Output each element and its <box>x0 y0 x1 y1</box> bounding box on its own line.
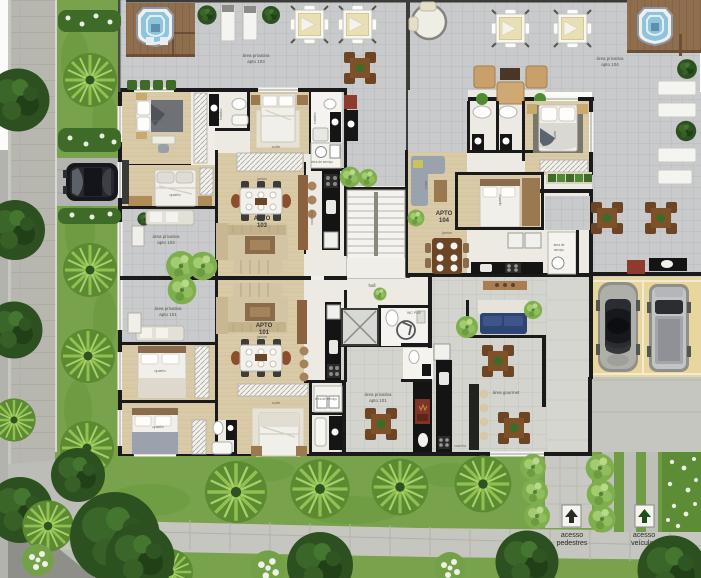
svg-text:banho: banho <box>312 112 317 124</box>
svg-text:acesso: acesso <box>633 532 655 539</box>
svg-text:pedestres: pedestres <box>557 540 588 547</box>
svg-text:quarto: quarto <box>152 424 164 429</box>
svg-text:cozinha: cozinha <box>309 210 314 225</box>
svg-text:quarto: quarto <box>152 118 164 123</box>
svg-text:apto 103: apto 103 <box>247 59 265 64</box>
svg-text:cozinha: cozinha <box>454 444 466 448</box>
svg-text:área gourmet: área gourmet <box>493 390 521 395</box>
svg-text:103: 103 <box>257 223 268 229</box>
svg-text:apto 103: apto 103 <box>157 240 175 245</box>
svg-text:jantar: jantar <box>256 176 268 181</box>
svg-text:área de serviço: área de serviço <box>311 160 333 164</box>
svg-text:quarto: quarto <box>169 192 181 197</box>
svg-text:estar: estar <box>423 180 428 190</box>
svg-text:área privativa: área privativa <box>152 234 180 239</box>
svg-text:acesso: acesso <box>561 532 583 539</box>
svg-text:apto 104: apto 104 <box>601 62 619 67</box>
svg-text:APTO: APTO <box>256 323 273 329</box>
svg-text:área privativa: área privativa <box>242 53 270 58</box>
svg-text:APTO: APTO <box>436 211 453 217</box>
svg-text:quarto: quarto <box>154 368 166 373</box>
svg-text:hall: hall <box>368 283 375 288</box>
svg-text:WC PNE: WC PNE <box>407 311 422 315</box>
svg-text:área privativa: área privativa <box>596 56 624 61</box>
svg-text:104: 104 <box>439 218 450 224</box>
svg-text:101: 101 <box>259 330 270 336</box>
svg-text:jantar: jantar <box>441 230 453 235</box>
svg-text:área privativa: área privativa <box>154 306 182 311</box>
svg-text:suíte: suíte <box>272 144 281 149</box>
svg-text:área de: área de <box>554 243 565 247</box>
svg-text:suíte: suíte <box>552 130 557 139</box>
svg-text:área privativa: área privativa <box>364 392 392 397</box>
svg-text:apto 101: apto 101 <box>369 398 387 403</box>
svg-text:área de serviço: área de serviço <box>315 397 337 401</box>
svg-text:suíte: suíte <box>272 400 281 405</box>
svg-text:quarto: quarto <box>497 194 502 206</box>
svg-text:apto 101: apto 101 <box>159 312 177 317</box>
svg-text:serviço: serviço <box>554 248 564 252</box>
svg-text:banho: banho <box>218 108 223 120</box>
svg-text:APTO: APTO <box>254 216 271 222</box>
